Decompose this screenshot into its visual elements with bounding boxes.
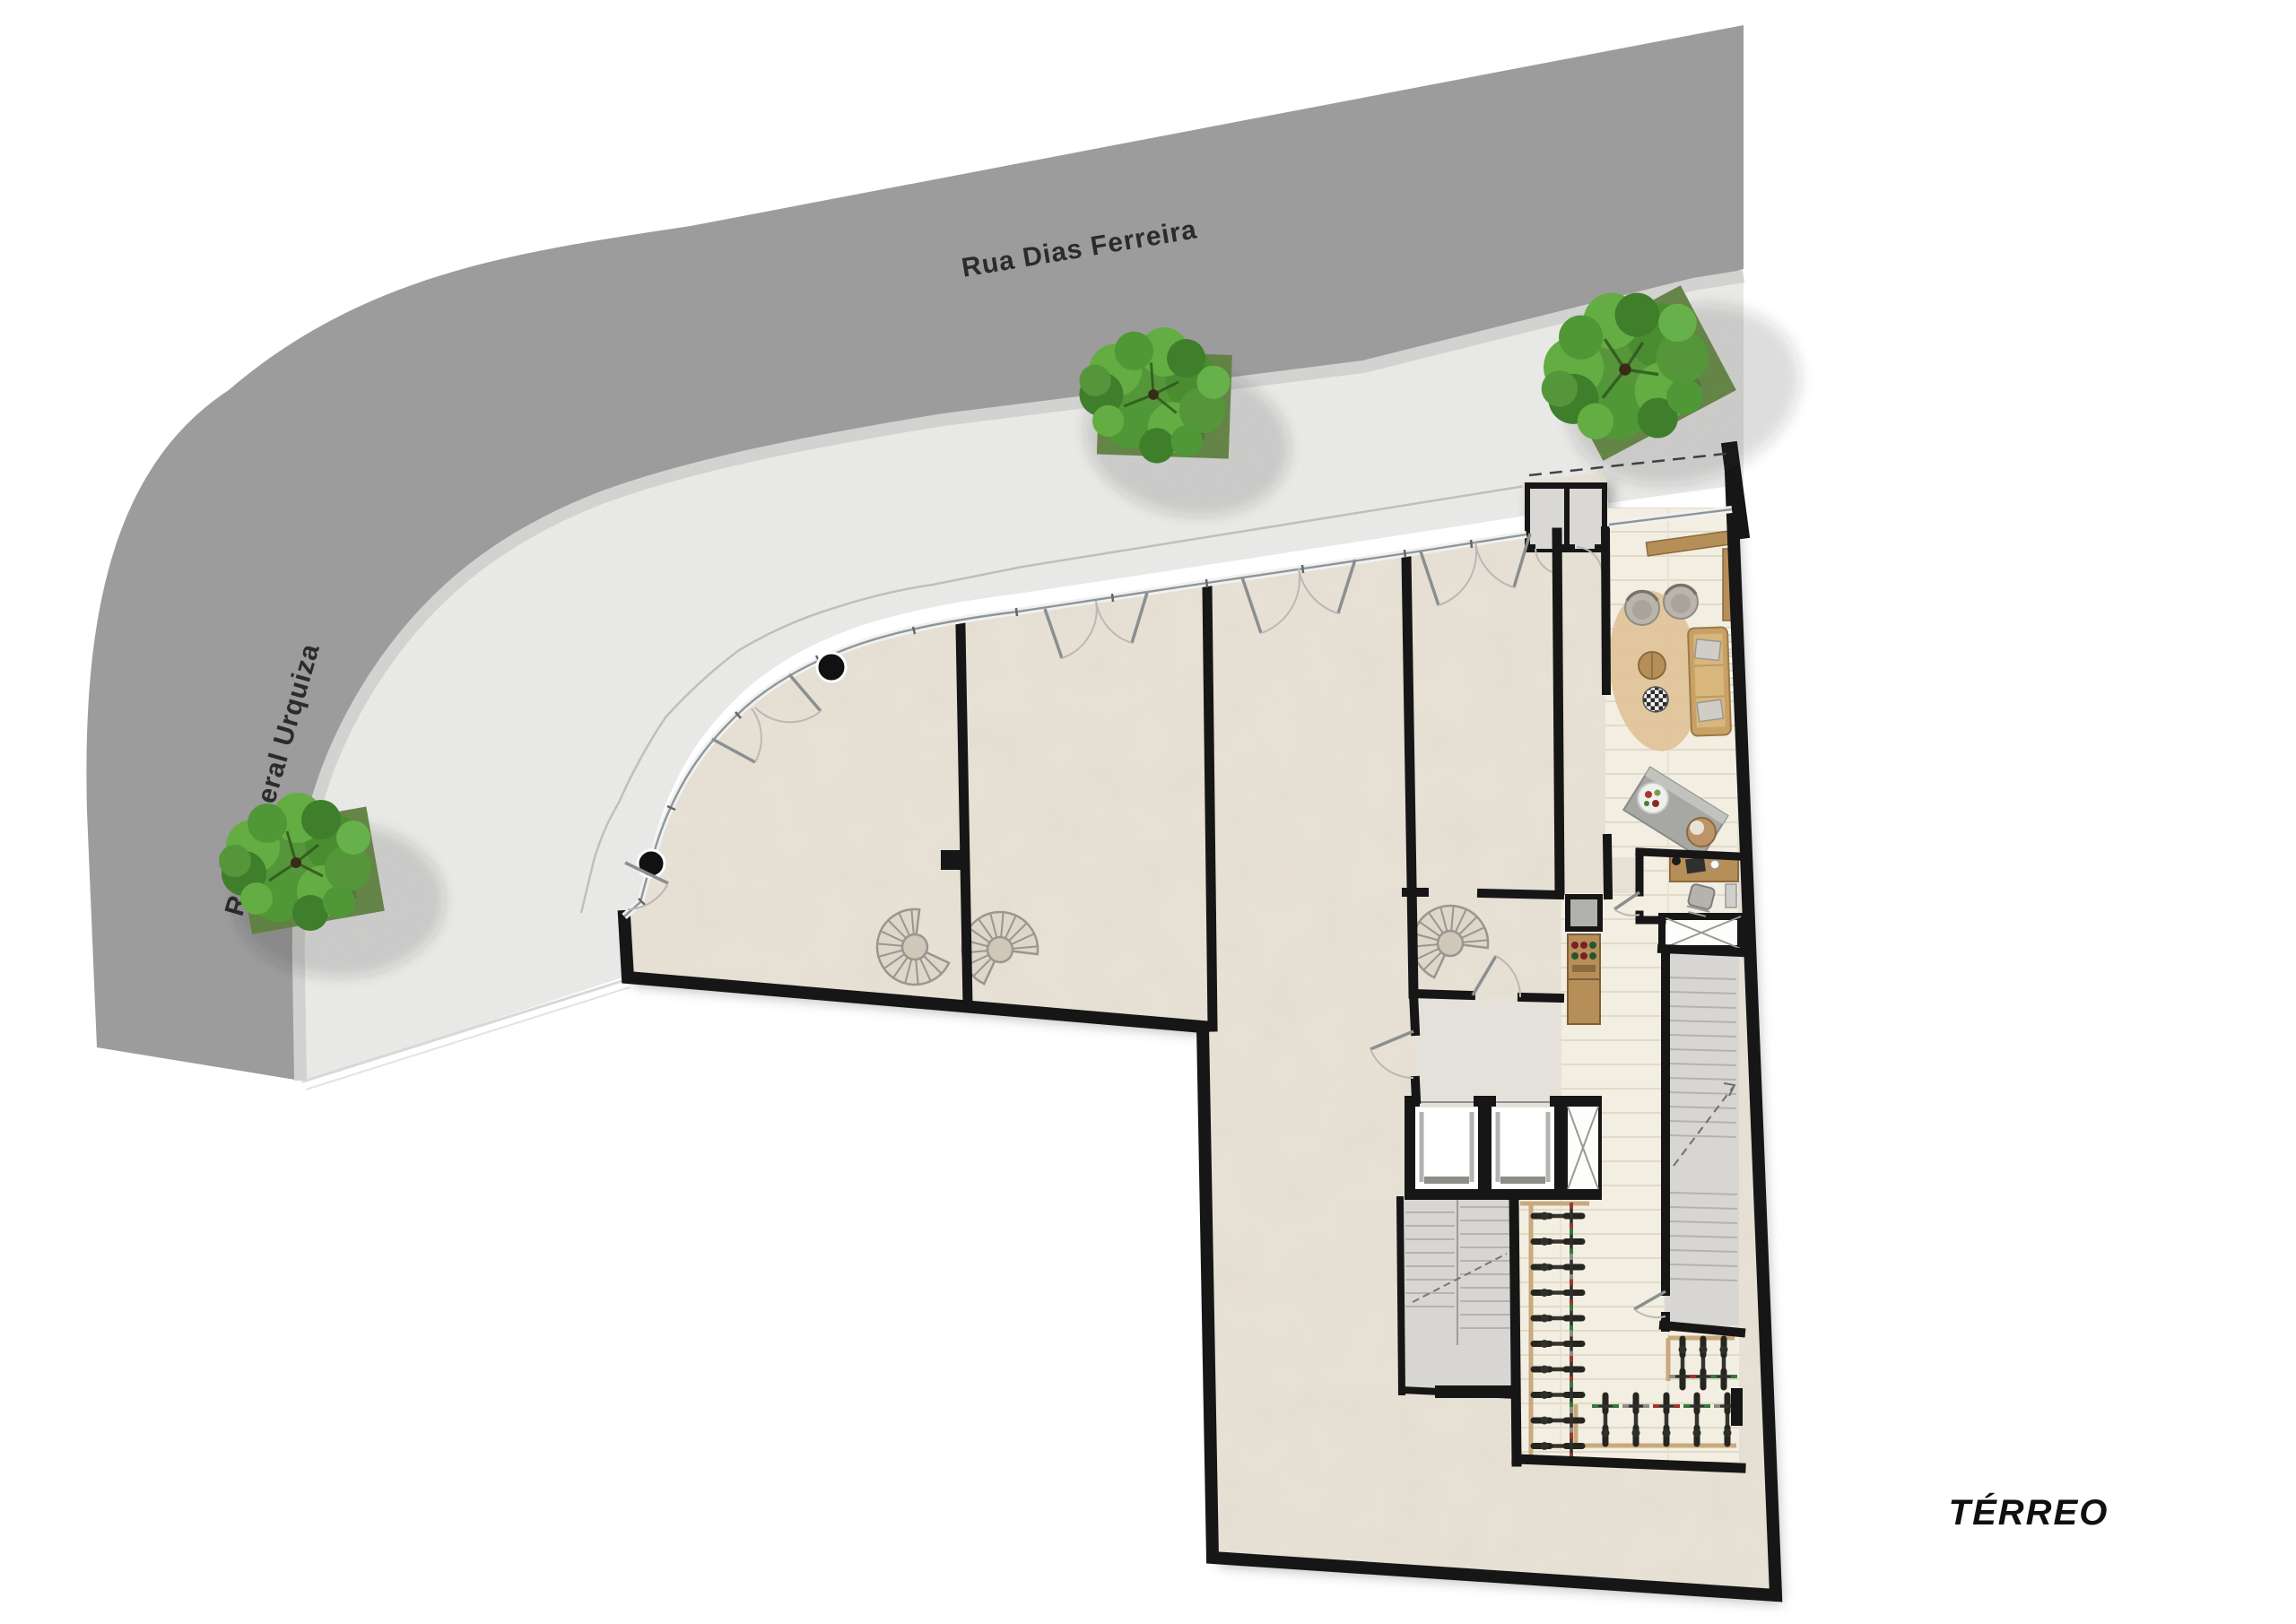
floor-plan-canvas: Rua Dias Ferreira Rua General Urquiza (0, 0, 2296, 1624)
floor-plan-page: Rua Dias Ferreira Rua General Urquiza (0, 0, 2296, 1624)
vestibule-floor (1415, 998, 1560, 1099)
mug-icon (1710, 860, 1719, 869)
column-icon (817, 653, 846, 682)
column-icon (638, 850, 665, 877)
sofa-icon (1688, 627, 1731, 735)
armchair-icon (1625, 591, 1659, 625)
laptop-icon (1685, 857, 1706, 874)
flower-arrangement-icon (1638, 783, 1668, 813)
elevator-core (1405, 1096, 1602, 1200)
duct-shaft (1662, 916, 1741, 949)
wine-cabinet (1568, 897, 1600, 1024)
floor-title: TÉRREO (1949, 1492, 2109, 1533)
wine-bottles-icon (1571, 942, 1596, 972)
checkered-pouf (1643, 687, 1668, 712)
reception-chair-icon (1687, 818, 1716, 847)
armchair-icon (1664, 585, 1698, 619)
